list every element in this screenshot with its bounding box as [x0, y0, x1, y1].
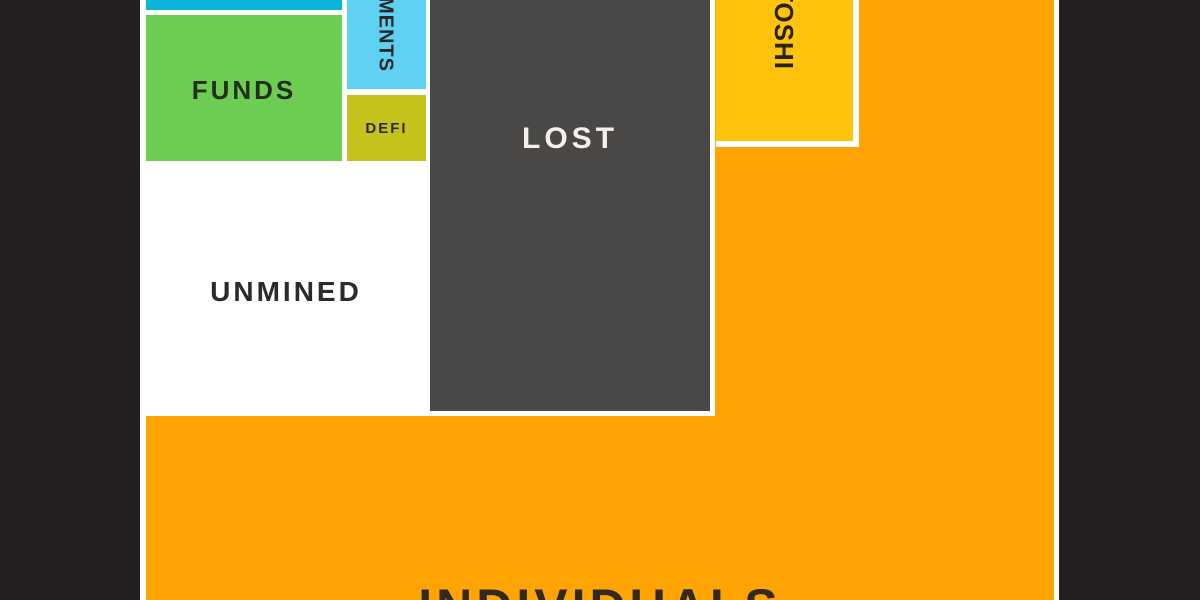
tile-defi-label: DEFI: [365, 120, 407, 137]
tile-governments: GOVERNMENTS: [347, 0, 426, 89]
page-background: FUNDS GOVERNMENTS DEFI UNMINED LOST SATO…: [0, 0, 1200, 600]
tile-defi: DEFI: [347, 95, 426, 161]
tile-unmined-label: UNMINED: [210, 270, 362, 308]
tile-individuals-label: INDIVIDUALS: [146, 578, 1054, 600]
tile-unmined: UNMINED: [146, 166, 426, 411]
tile-satoshi: SATOSHI: [716, 0, 859, 147]
tile-funds-label: FUNDS: [192, 71, 297, 106]
tile-unlabeled-top-strip: [146, 0, 342, 10]
tile-governments-label: GOVERNMENTS: [376, 0, 396, 72]
treemap-panel: FUNDS GOVERNMENTS DEFI UNMINED LOST SATO…: [140, 0, 1059, 600]
tile-lost: LOST: [430, 0, 710, 411]
tile-individuals: INDIVIDUALS: [146, 416, 1054, 600]
tile-funds: FUNDS: [146, 15, 342, 161]
tile-lost-label: LOST: [430, 122, 710, 156]
tile-satoshi-label: SATOSHI: [771, 0, 797, 70]
